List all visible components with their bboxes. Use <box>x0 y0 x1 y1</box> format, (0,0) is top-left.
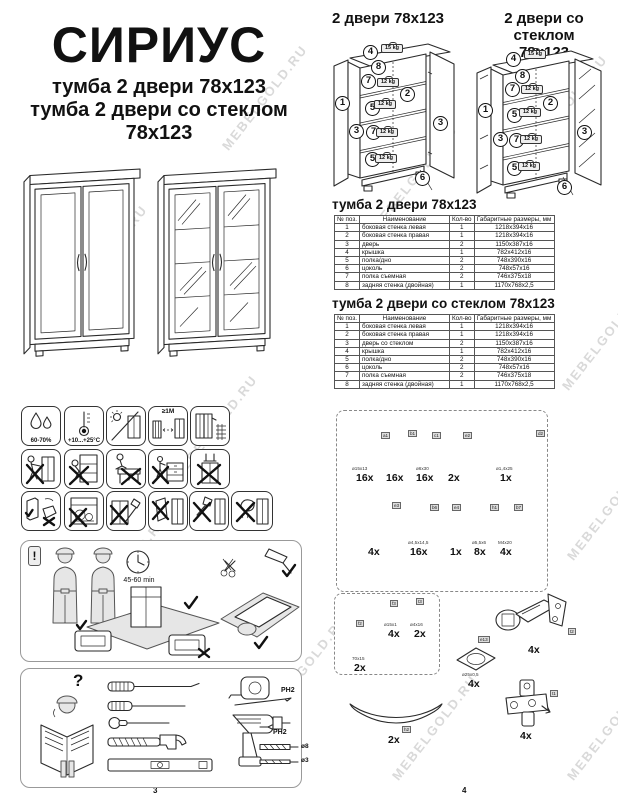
part-size: ø5,5х6 <box>472 540 486 545</box>
clock-icon <box>125 549 151 575</box>
table-cell: 1170х768х2,5 <box>474 281 554 289</box>
no-sit-icon <box>108 451 144 487</box>
table-cell: боковая стенка левая <box>359 323 449 331</box>
part-callout: 8 <box>515 69 530 84</box>
table-cell: крышка <box>359 248 449 256</box>
part-qty: 2x <box>388 734 400 746</box>
table-cell: 1218х394х16 <box>474 232 554 240</box>
table-cell: 748х390х16 <box>474 257 554 265</box>
table-cell: дверь со стеклом <box>359 339 449 347</box>
part-tag: f3 <box>390 600 398 607</box>
part-qty: 16x <box>410 546 428 558</box>
table-cell: 1 <box>449 224 474 232</box>
table-cell: 7 <box>335 372 360 380</box>
upright-check-icon <box>23 493 59 529</box>
table-cell: цоколь <box>359 364 449 372</box>
wall-fix-icon <box>192 408 228 444</box>
part-size: ø15х13 <box>352 466 367 471</box>
part-tag: e13 <box>478 636 490 643</box>
part-callout: 7 <box>505 82 520 97</box>
table-row: № поз.НаименованиеКол-воГабаритные разме… <box>335 315 555 323</box>
table-cell: 2 <box>335 331 360 339</box>
table-cell: 1150х387х16 <box>474 240 554 248</box>
part-tag: f2 <box>356 620 364 627</box>
part-qty: 2x <box>448 472 460 484</box>
icon-humidity: 60-70% <box>21 406 61 446</box>
parts-table-glass: № поз.НаименованиеКол-воГабаритные разме… <box>334 314 555 389</box>
part-qty: 4x <box>500 546 512 558</box>
d8-label: ø8 <box>301 743 309 750</box>
table-cell: 1 <box>449 281 474 289</box>
table-cell: 3 <box>335 339 360 347</box>
table-cell: 782х412х16 <box>474 248 554 256</box>
table-cell: 6 <box>335 265 360 273</box>
part-size: ø1,4х25 <box>496 466 513 471</box>
part-qty: 16x <box>416 472 434 484</box>
table-row: 4крышка1782х412х16 <box>335 248 555 256</box>
weight-tag: 12 kg <box>376 128 398 137</box>
part-qty: 16x <box>386 472 404 484</box>
drill-bit-8-icon <box>259 743 299 751</box>
level-icon <box>107 757 217 773</box>
table-cell: 1 <box>335 323 360 331</box>
adhesive-pad-icon <box>455 644 497 672</box>
part-tag: e3 <box>392 502 401 509</box>
icon-no-leaning-panels <box>148 491 188 531</box>
table-cell: 8 <box>335 380 360 388</box>
table-cell: 7 <box>335 273 360 281</box>
curved-strip-icon <box>346 696 446 730</box>
table-cell: 1 <box>449 347 474 355</box>
table-cell: 4 <box>335 347 360 355</box>
icon-no-hammering <box>106 491 146 531</box>
table-cell: задняя стенка (двойная) <box>359 281 449 289</box>
icon-no-heavy-items <box>64 491 104 531</box>
cabinet-front-view-solid <box>22 138 154 356</box>
part-size: ø6х30 <box>416 466 429 471</box>
table-cell: цоколь <box>359 265 449 273</box>
no-hammer-icon <box>108 493 144 529</box>
table-cell: 2 <box>449 265 474 273</box>
watermark: MEBELGOLD.RU <box>559 282 618 393</box>
part-tag: t3 <box>416 598 424 605</box>
diagram-title-left: 2 двери 78х123 <box>332 10 444 27</box>
part-qty: 1x <box>500 472 512 484</box>
table-cell: 746х375х18 <box>474 273 554 281</box>
part-tag: h2 <box>402 726 411 733</box>
table-row: 3дверь со стеклом21150х387х16 <box>335 339 555 347</box>
part-callout: 6 <box>415 171 430 186</box>
part-callout: 6 <box>557 180 572 195</box>
part-callout: 3 <box>577 125 592 140</box>
no-wet-icon <box>233 493 271 529</box>
part-qty: 16x <box>356 472 374 484</box>
table-cell: 1218х394х16 <box>474 331 554 339</box>
awl-icon <box>107 716 187 730</box>
drill-bit-3-icon <box>259 759 299 765</box>
table-cell: полка съемная <box>359 372 449 380</box>
distance-label: ≥1M <box>149 408 187 415</box>
part-tag: t2 <box>568 628 576 635</box>
assembly-time-label: 45-60 min <box>113 577 165 584</box>
no-push-icon <box>23 451 59 487</box>
sun-cabinet-icon <box>108 408 144 444</box>
icon-no-wet-cleaning <box>231 491 273 531</box>
hammer-icon <box>107 731 217 753</box>
part-tag: t1 <box>550 690 558 697</box>
table-cell: 2 <box>335 232 360 240</box>
icon-no-standing-on-top <box>190 449 230 489</box>
subtitle-1: тумба 2 двери 78х123 <box>8 76 310 99</box>
part-qty: 4x <box>528 644 540 656</box>
instruction-page: MEBELGOLD.RU MEBELGOLD.RU MEBELGOLD.RU M… <box>0 0 618 800</box>
table-cell: 1 <box>449 323 474 331</box>
weight-tag: 12 kg <box>377 78 399 87</box>
assembly-scene <box>73 585 233 659</box>
table-cell: 2 <box>449 364 474 372</box>
table-cell: 748х390х16 <box>474 356 554 364</box>
part-qty: 1x <box>450 546 462 558</box>
no-climb-icon <box>66 451 102 487</box>
part-qty: 2x <box>414 628 426 640</box>
part-qty: 8x <box>474 546 486 558</box>
part-callout: 3 <box>349 124 364 139</box>
part-callout: 4 <box>363 45 378 60</box>
table-header-cell: Наименование <box>359 216 449 224</box>
part-tag: e4 <box>452 504 461 511</box>
part-tag: h1 <box>490 504 499 511</box>
part-callout: 7 <box>361 74 376 89</box>
table-cell: полка съемная <box>359 273 449 281</box>
icon-keep-upright <box>21 491 61 531</box>
table-cell: дверь <box>359 240 449 248</box>
table-header-cell: Габаритные размеры, мм <box>474 216 554 224</box>
part-tag: b6 <box>430 504 439 511</box>
parts-table-solid: № поз.НаименованиеКол-воГабаритные разме… <box>334 215 555 290</box>
table-row: 5полка/дно2748х390х16 <box>335 257 555 265</box>
read-manual-icon <box>31 687 107 779</box>
part-callout: 8 <box>371 60 386 75</box>
hinge-plate-icon <box>500 678 554 730</box>
part-callout: 1 <box>335 96 350 111</box>
table-row: 8задняя стенка (двойная)11170х768х2,5 <box>335 281 555 289</box>
table-cell: 3 <box>335 240 360 248</box>
part-qty: 4x <box>520 730 532 742</box>
table-header-cell: № поз. <box>335 315 360 323</box>
bit-icon <box>259 723 273 731</box>
table-row: 2боковая стенка правая11218х394х16 <box>335 331 555 339</box>
icon-distance-heater: ≥1M <box>148 406 188 446</box>
part-tag: d2 <box>536 430 545 437</box>
table-cell: полка/дно <box>359 257 449 265</box>
table-title-glass: тумба 2 двери со стеклом 78х123 <box>332 296 555 311</box>
table-row: 4крышка1782х412х16 <box>335 347 555 355</box>
table-cell: задняя стенка (двойная) <box>359 380 449 388</box>
table-cell: 2 <box>449 240 474 248</box>
table-cell: 1218х394х16 <box>474 323 554 331</box>
table-cell: 1170х768х2,5 <box>474 380 554 388</box>
part-tag: b7 <box>514 504 523 511</box>
part-callout: 3 <box>433 116 448 131</box>
no-child-icon <box>150 451 186 487</box>
table-cell: 1150х387х16 <box>474 339 554 347</box>
title-block: СИРИУС тумба 2 двери 78х123 тумба 2 двер… <box>8 16 310 145</box>
table-cell: 4 <box>335 248 360 256</box>
table-cell: 8 <box>335 281 360 289</box>
exploded-diagram-glass <box>471 39 617 197</box>
icon-no-climbing-inside <box>64 449 104 489</box>
icon-no-sharp-tools <box>189 491 229 531</box>
table-cell: 2 <box>449 372 474 380</box>
hinge-icon <box>492 592 572 642</box>
part-size: ø4х16 <box>410 622 423 627</box>
part-qty: 4x <box>388 628 400 640</box>
table-row: 8задняя стенка (двойная)11170х768х2,5 <box>335 380 555 388</box>
table-header-cell: Кол-во <box>449 216 474 224</box>
weight-tag: 12 kg <box>518 162 540 171</box>
no-lean-icon <box>150 493 186 529</box>
question-mark-label: ? <box>73 671 83 691</box>
watermark: MEBELGOLD.RU <box>564 672 618 783</box>
d3-label: ø3 <box>301 757 309 764</box>
page-title: СИРИУС <box>8 16 310 74</box>
screwdriver-flat-icon <box>107 699 207 713</box>
table-cell: 1 <box>449 380 474 388</box>
watermark: MEBELGOLD.RU <box>564 452 618 563</box>
table-cell: 782х412х16 <box>474 347 554 355</box>
warning-badge: ! <box>28 546 41 566</box>
part-tag: c1 <box>432 432 441 439</box>
cabinet-front-view-glass <box>156 138 290 354</box>
table-header-cell: Кол-во <box>449 315 474 323</box>
no-stand-icon <box>192 451 228 487</box>
table-row: 7полка съемная2746х375х18 <box>335 372 555 380</box>
weight-tag: 12 kg <box>521 85 543 94</box>
table-row: 6цоколь2748х57х16 <box>335 265 555 273</box>
part-callout: 3 <box>493 132 508 147</box>
part-qty: 2x <box>354 662 366 674</box>
icon-fix-to-wall <box>190 406 230 446</box>
table-cell: 1 <box>449 232 474 240</box>
table-cell: боковая стенка левая <box>359 224 449 232</box>
humidity-label: 60-70% <box>22 438 60 444</box>
part-callout: 2 <box>400 87 415 102</box>
part-size: M4х20 <box>498 540 512 545</box>
table-cell: 6 <box>335 364 360 372</box>
table-cell: 1218х394х16 <box>474 224 554 232</box>
part-size: ø4,5х14,5 <box>408 540 428 545</box>
table-cell: 2 <box>449 273 474 281</box>
page-number-4: 4 <box>462 786 466 795</box>
weight-tag: 12 kg <box>374 100 396 109</box>
table-row: 5полка/дно2748х390х16 <box>335 356 555 364</box>
table-cell: 748х57х16 <box>474 265 554 273</box>
table-header-cell: Габаритные размеры, мм <box>474 315 554 323</box>
icon-no-direct-sunlight <box>106 406 146 446</box>
table-row: 3дверь21150х387х16 <box>335 240 555 248</box>
table-cell: полка/дно <box>359 356 449 364</box>
table-cell: 1 <box>335 224 360 232</box>
part-callout: 4 <box>506 52 521 67</box>
table-row: 1боковая стенка левая11218х394х16 <box>335 224 555 232</box>
unpacking-scene <box>217 545 301 659</box>
table-row: 6цоколь2748х57х16 <box>335 364 555 372</box>
part-callout: 2 <box>543 96 558 111</box>
weight-tag: 12 kg <box>519 108 541 117</box>
part-qty: 4x <box>468 678 480 690</box>
temperature-label: +10...+25°C <box>65 438 103 444</box>
no-axe-icon <box>191 493 227 529</box>
table-cell: 5 <box>335 257 360 265</box>
weight-tag: 12 kg <box>520 135 542 144</box>
table-header-cell: Наименование <box>359 315 449 323</box>
table-cell: крышка <box>359 347 449 355</box>
hardware-panel-1 <box>336 410 548 592</box>
weight-tag: 12 kg <box>375 154 397 163</box>
no-heavy-icon <box>66 493 102 529</box>
tools-panel: ? PH2 <box>20 668 302 788</box>
icon-temperature: +10...+25°C <box>64 406 104 446</box>
table-cell: 2 <box>449 339 474 347</box>
table-title-solid: тумба 2 двери 78х123 <box>332 197 477 212</box>
icon-no-children-drawers <box>148 449 188 489</box>
part-tag: b1 <box>408 430 417 437</box>
weight-tag: 15 kg <box>524 50 546 59</box>
weight-tag: 15 kg <box>381 44 403 53</box>
bit-ph2-label: PH2 <box>273 729 287 736</box>
part-callout: 1 <box>478 103 493 118</box>
part-qty: 4x <box>368 546 380 558</box>
assembly-prep-panel: ! 45-60 min <box>20 540 302 662</box>
table-row: № поз.НаименованиеКол-воГабаритные разме… <box>335 216 555 224</box>
part-size: ø25х0,5 <box>462 672 479 677</box>
table-cell: боковая стенка правая <box>359 232 449 240</box>
icon-no-pushing <box>21 449 61 489</box>
table-row: 2боковая стенка правая11218х394х16 <box>335 232 555 240</box>
part-tag: a1 <box>381 432 390 439</box>
part-size: 70х15 <box>352 656 365 661</box>
ph2-label: PH2 <box>281 687 295 694</box>
table-header-cell: № поз. <box>335 216 360 224</box>
table-cell: боковая стенка правая <box>359 331 449 339</box>
table-cell: 748х57х16 <box>474 364 554 372</box>
part-tag: e2 <box>463 432 472 439</box>
table-row: 7полка съемная2746х375х18 <box>335 273 555 281</box>
table-cell: 1 <box>449 331 474 339</box>
icon-no-sitting <box>106 449 146 489</box>
table-cell: 746х375х18 <box>474 372 554 380</box>
table-cell: 5 <box>335 356 360 364</box>
table-cell: 2 <box>449 257 474 265</box>
table-cell: 2 <box>449 356 474 364</box>
exploded-diagram-solid <box>328 32 468 194</box>
table-row: 1боковая стенка левая11218х394х16 <box>335 323 555 331</box>
part-size: ø15х1 <box>384 622 397 627</box>
table-cell: 1 <box>449 248 474 256</box>
screwdriver-ph2-icon <box>107 679 215 695</box>
